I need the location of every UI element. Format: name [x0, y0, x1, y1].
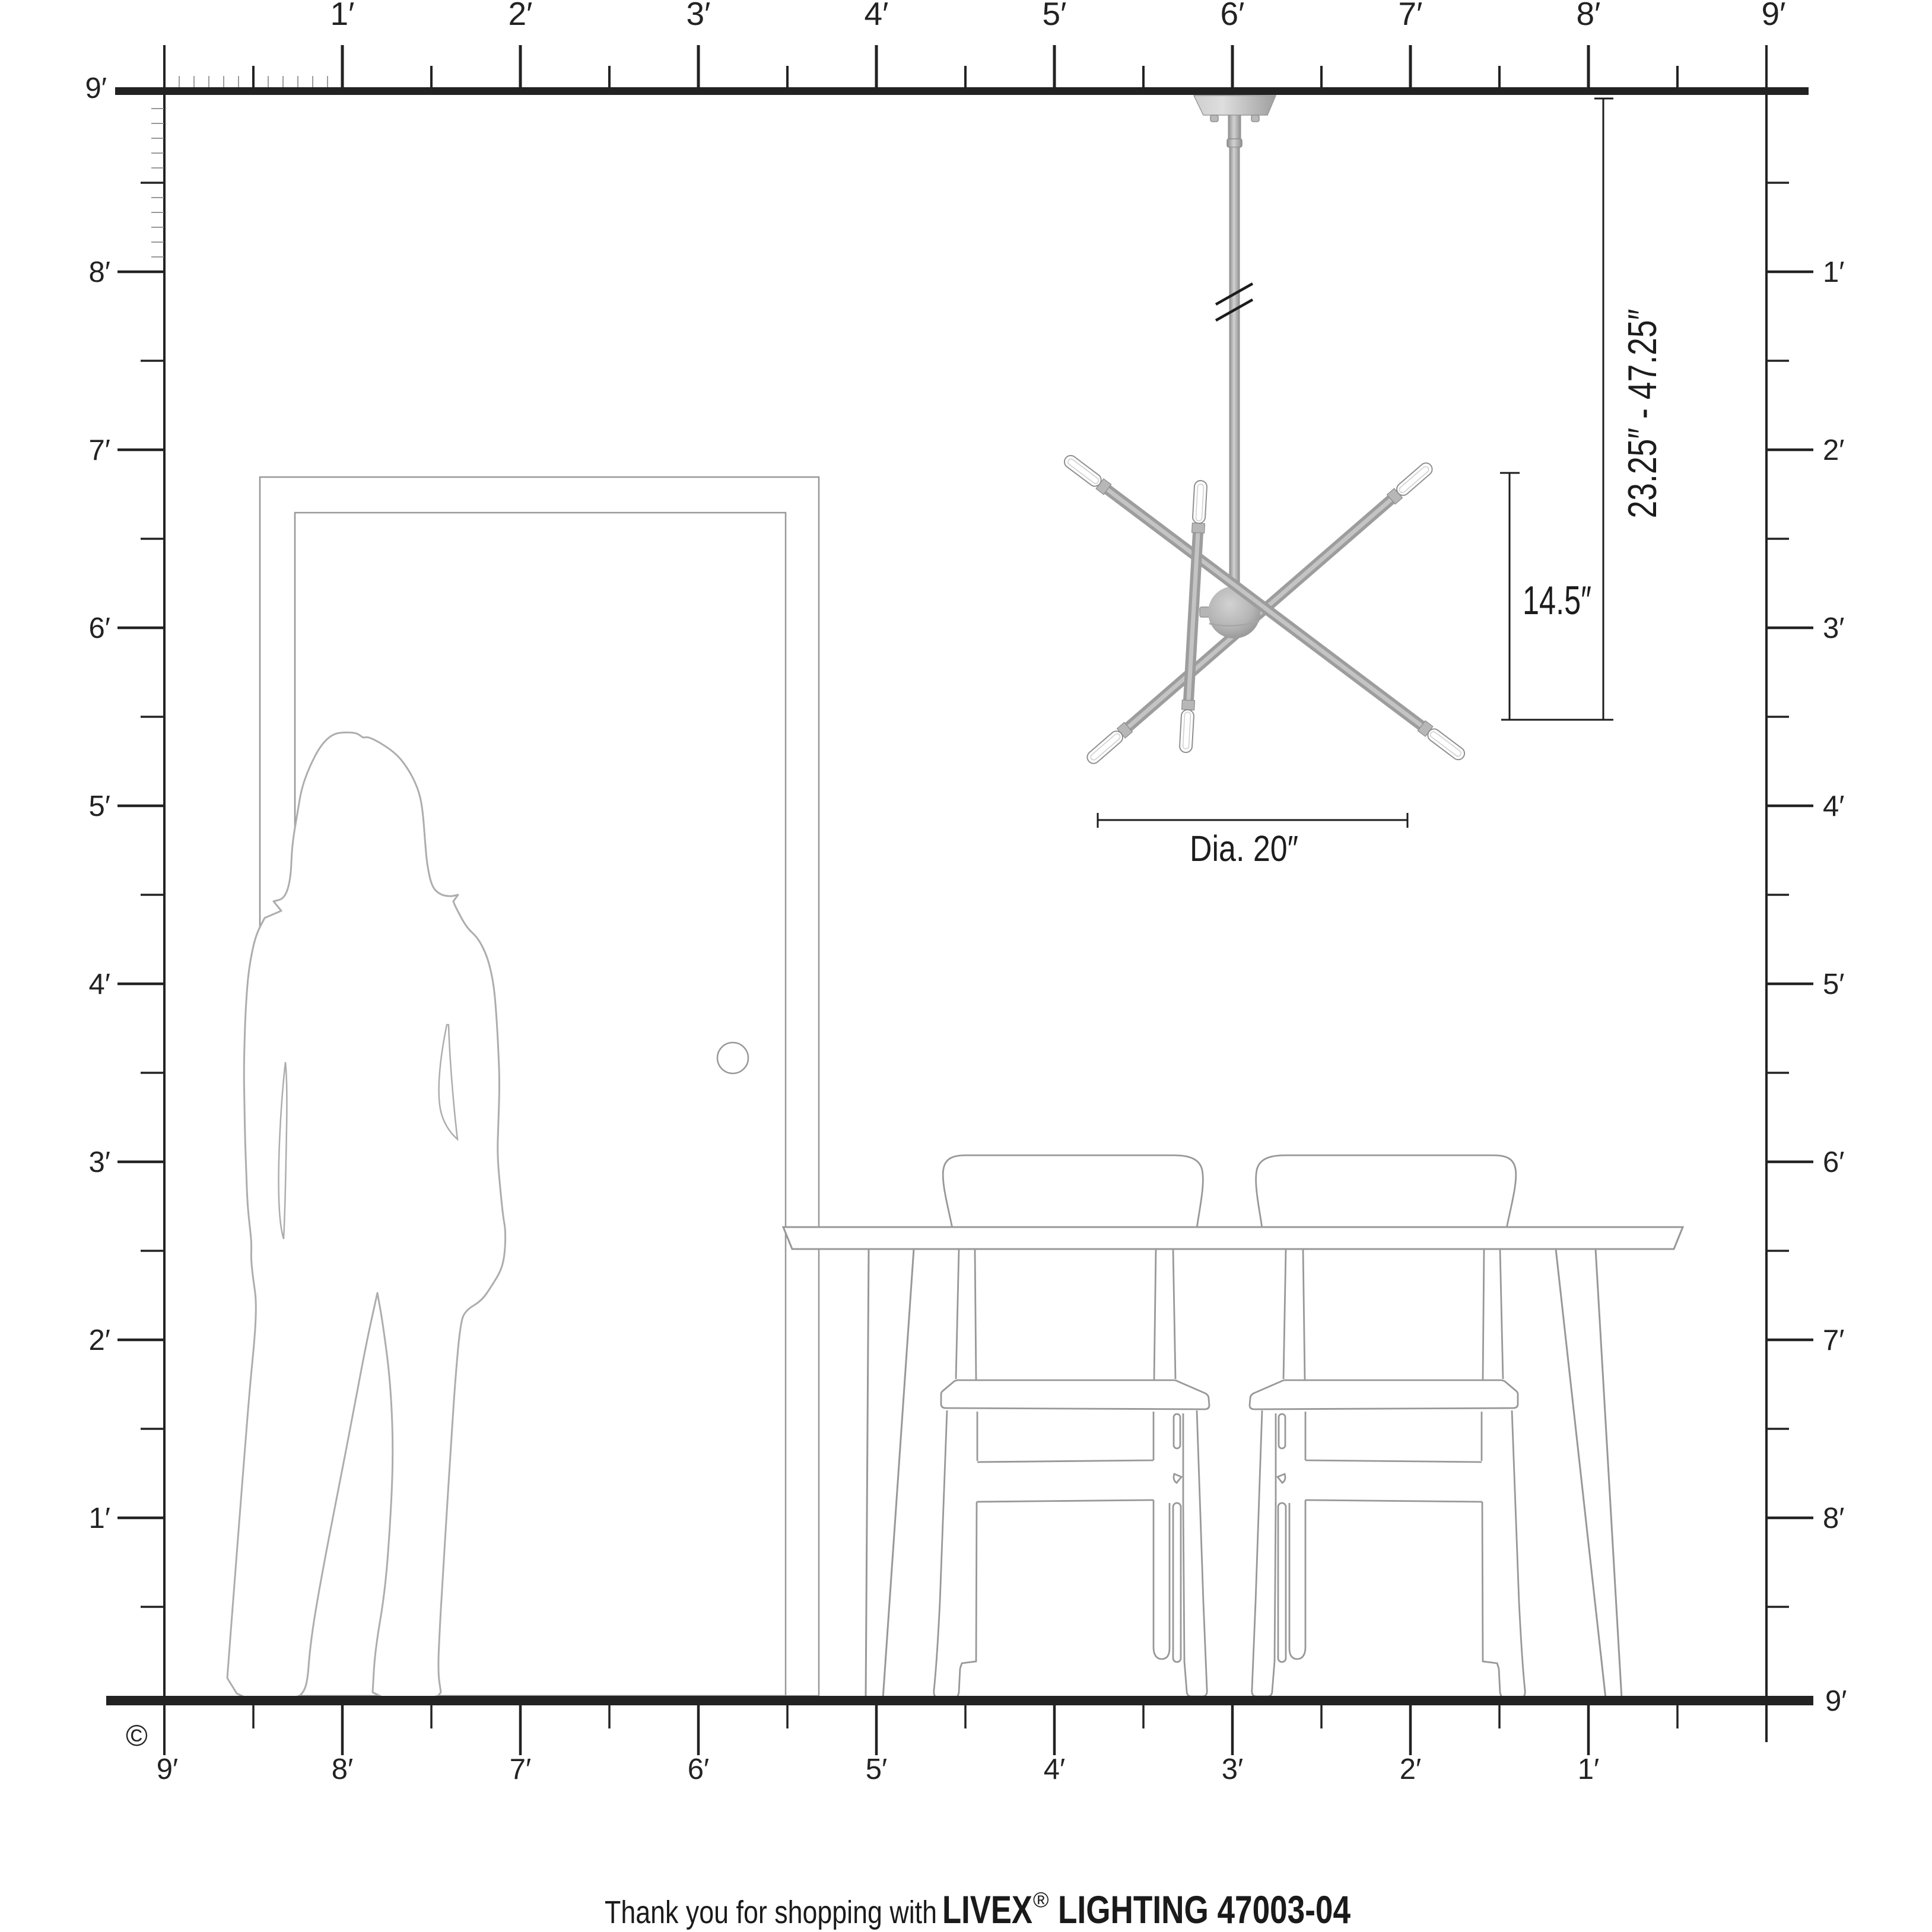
svg-text:9′: 9′	[1825, 1685, 1847, 1717]
svg-text:5′: 5′	[1823, 968, 1844, 1000]
svg-text:©: ©	[126, 1719, 148, 1752]
svg-text:Thank you for shopping with: Thank you for shopping with	[605, 1895, 937, 1930]
svg-text:23.25″ - 47.25″: 23.25″ - 47.25″	[1620, 309, 1665, 519]
svg-text:7′: 7′	[1399, 0, 1423, 32]
svg-text:9′: 9′	[157, 1753, 178, 1785]
svg-text:8′: 8′	[1577, 0, 1601, 32]
svg-text:4′: 4′	[865, 0, 889, 32]
svg-text:3′: 3′	[687, 0, 711, 32]
svg-text:2′: 2′	[89, 1324, 110, 1356]
svg-text:®: ®	[1033, 1887, 1049, 1912]
svg-text:LIVEX: LIVEX	[942, 1887, 1032, 1931]
svg-text:1′: 1′	[1578, 1753, 1599, 1785]
svg-text:1′: 1′	[89, 1502, 110, 1534]
svg-text:2′: 2′	[509, 0, 533, 32]
svg-text:4′: 4′	[1044, 1753, 1065, 1785]
svg-text:2′: 2′	[1400, 1753, 1421, 1785]
svg-text:2′: 2′	[1823, 434, 1844, 466]
svg-text:9′: 9′	[85, 72, 107, 104]
svg-text:4′: 4′	[1823, 790, 1844, 822]
svg-text:1′: 1′	[1823, 256, 1844, 288]
svg-text:9′: 9′	[1762, 0, 1786, 32]
svg-text:6′: 6′	[1221, 0, 1245, 32]
svg-text:5′: 5′	[1043, 0, 1067, 32]
svg-text:6′: 6′	[89, 612, 110, 644]
svg-text:1′: 1′	[331, 0, 355, 32]
svg-text:3′: 3′	[1823, 612, 1844, 644]
svg-text:8′: 8′	[89, 256, 110, 288]
svg-text:4′: 4′	[89, 968, 110, 1000]
svg-text:8′: 8′	[332, 1753, 353, 1785]
svg-text:7′: 7′	[1823, 1324, 1844, 1356]
svg-text:5′: 5′	[866, 1753, 887, 1785]
svg-text:3′: 3′	[89, 1146, 110, 1178]
svg-text:7′: 7′	[510, 1753, 531, 1785]
svg-text:5′: 5′	[89, 790, 110, 822]
svg-text:LIGHTING 47003-04: LIGHTING 47003-04	[1058, 1887, 1351, 1931]
svg-text:7′: 7′	[89, 434, 110, 466]
svg-text:Dia. 20″: Dia. 20″	[1190, 828, 1298, 869]
svg-text:14.5″: 14.5″	[1523, 578, 1591, 623]
svg-text:6′: 6′	[688, 1753, 709, 1785]
svg-text:6′: 6′	[1823, 1146, 1844, 1178]
svg-text:8′: 8′	[1823, 1502, 1844, 1534]
svg-text:3′: 3′	[1222, 1753, 1243, 1785]
